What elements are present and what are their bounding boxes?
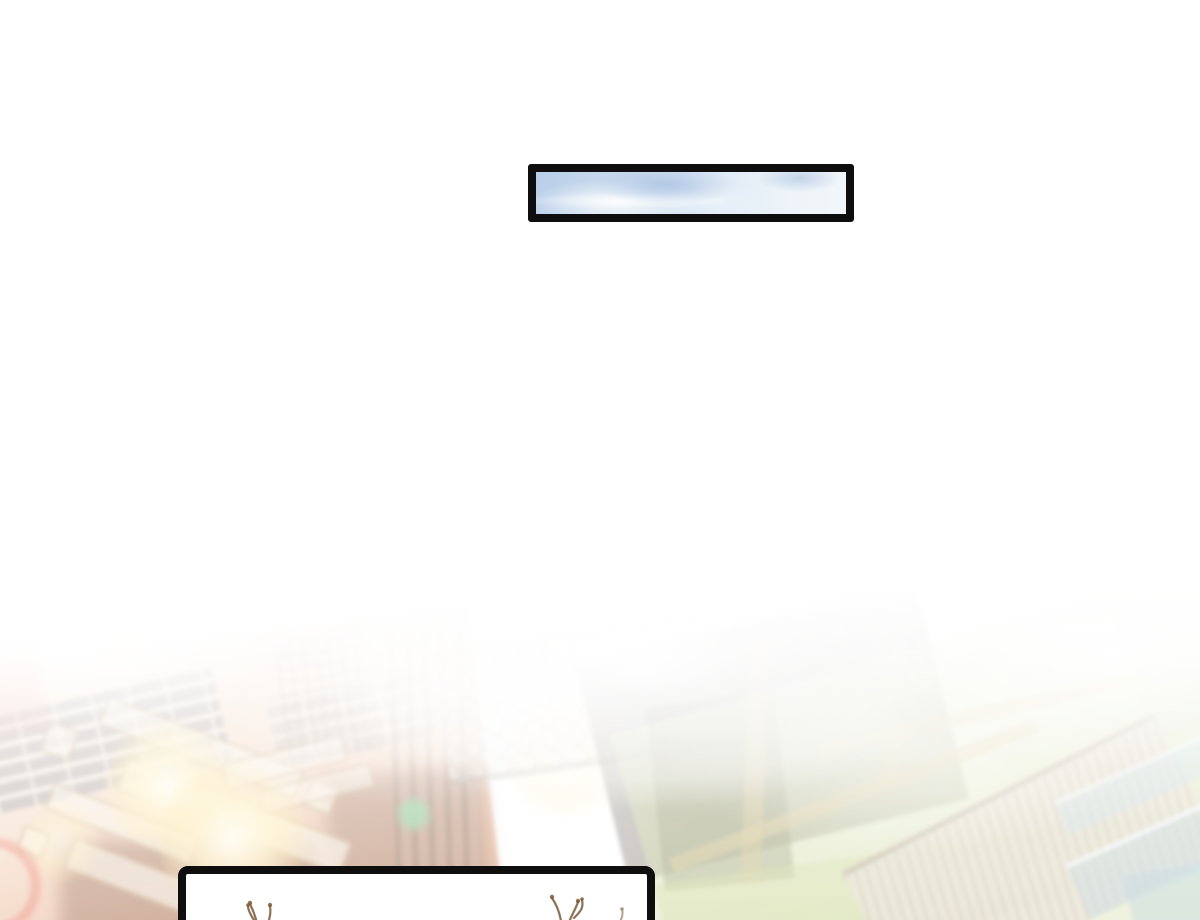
- white-mist-overlay: [0, 0, 1200, 920]
- twig-sprig-icon: [226, 898, 296, 920]
- courtyard-scene: [0, 0, 1200, 920]
- speech-box: [178, 866, 655, 920]
- sky-panel: [528, 164, 854, 222]
- comic-page: [0, 0, 1200, 920]
- twig-sprig-icon: [530, 890, 606, 920]
- twig-sprig-icon: [612, 906, 636, 920]
